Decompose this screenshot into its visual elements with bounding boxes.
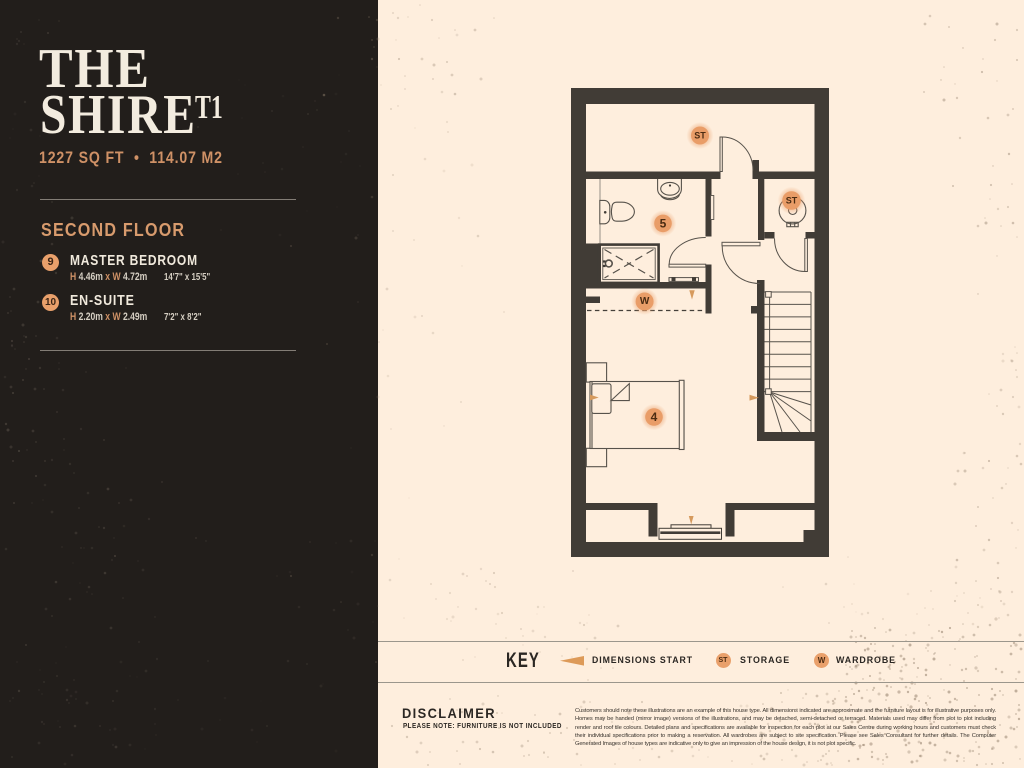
svg-text:W: W — [640, 296, 650, 307]
svg-text:5: 5 — [660, 216, 667, 230]
svg-text:ST: ST — [786, 196, 798, 206]
svg-text:ST: ST — [694, 131, 706, 141]
svg-text:4: 4 — [651, 410, 658, 424]
